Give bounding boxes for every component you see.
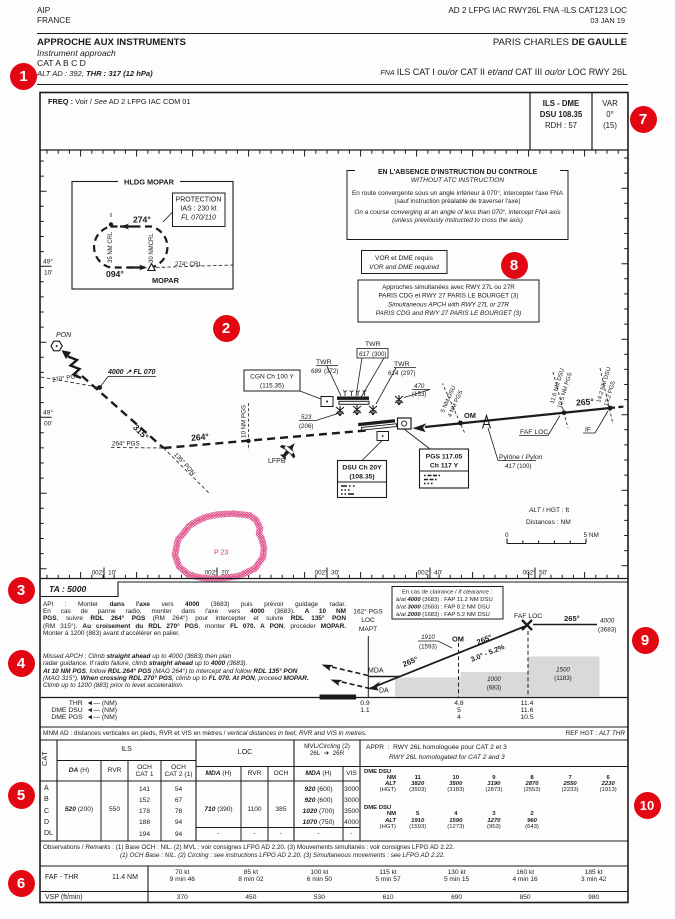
svg-text:270° PGS: 270° PGS	[52, 373, 80, 384]
svg-text:265°: 265°	[401, 655, 419, 669]
svg-text:PARIS CDG et RWY 27 PARIS LE B: PARIS CDG et RWY 27 PARIS LE BOURGET (3)	[378, 293, 518, 300]
svg-text:IAS : 230 kt: IAS : 230 kt	[180, 206, 216, 213]
svg-text:1500: 1500	[556, 667, 570, 674]
svg-text:(372): (372)	[324, 368, 338, 375]
svg-text:Distances : NM: Distances : NM	[526, 519, 571, 526]
svg-text:CGN Ch 100 Y: CGN Ch 100 Y	[250, 374, 294, 381]
svg-text:TWR: TWR	[394, 361, 410, 368]
svg-text:617: 617	[359, 351, 370, 358]
svg-text:FAF LOC: FAF LOC	[514, 613, 542, 620]
svg-text:TWR: TWR	[316, 359, 332, 366]
svg-text:Simultaneous APCH with RWY 27L: Simultaneous APCH with RWY 27L or 27R	[388, 302, 509, 309]
svg-text:(297): (297)	[401, 370, 415, 377]
svg-text:470: 470	[414, 383, 425, 390]
svg-text:(115.35): (115.35)	[260, 383, 284, 390]
svg-text:P 23: P 23	[214, 550, 228, 557]
svg-text:LOC: LOC	[361, 617, 375, 624]
svg-text:417 (100): 417 (100)	[505, 463, 532, 470]
svg-text:689: 689	[311, 368, 322, 375]
svg-text:135° PON: 135° PON	[172, 451, 196, 476]
svg-text:VOR et DME requis: VOR et DME requis	[375, 255, 434, 262]
svg-text:MOPAR: MOPAR	[152, 276, 180, 285]
svg-text:à/at 2000 (1683) : FAP 5.2 NM: à/at 2000 (1683) : FAP 5.2 NM DSU	[396, 612, 490, 618]
svg-text:315°: 315°	[131, 422, 151, 442]
svg-text:PON: PON	[56, 332, 72, 339]
svg-text:(300): (300)	[372, 351, 386, 358]
svg-text:1910: 1910	[421, 634, 435, 641]
svg-text:Ch 117 Y: Ch 117 Y	[430, 463, 459, 470]
svg-text:1000: 1000	[487, 676, 501, 683]
svg-text:5 NM: 5 NM	[584, 532, 599, 539]
svg-text:DSU Ch 20Y: DSU Ch 20Y	[342, 465, 382, 472]
svg-text:WITHOUT ATC INSTRUCTION: WITHOUT ATC INSTRUCTION	[411, 177, 504, 184]
svg-text:DA: DA	[379, 688, 389, 695]
svg-text:(108.35): (108.35)	[349, 474, 374, 481]
svg-text:265°: 265°	[475, 633, 493, 647]
svg-text:ALT / HGT : ft: ALT / HGT : ft	[528, 507, 569, 514]
svg-text:00': 00'	[44, 421, 52, 428]
svg-text:OM: OM	[452, 635, 464, 644]
svg-text:523: 523	[301, 414, 312, 421]
svg-text:En cas de clairance / If clear: En cas de clairance / If clearance :	[402, 590, 492, 596]
svg-text:265°: 265°	[564, 614, 580, 623]
svg-text:à/at 3000 (2683) : FAP 8.2 NM: à/at 3000 (2683) : FAP 8.2 NM DSU	[396, 605, 490, 611]
svg-text:En route convergente sous un a: En route convergente sous un angle infér…	[352, 189, 564, 197]
svg-text:VOR and DME required: VOR and DME required	[369, 264, 439, 271]
svg-text:PROTECTION: PROTECTION	[176, 197, 222, 204]
svg-text:PARIS CDG and RWY 27 PARIS LE: PARIS CDG and RWY 27 PARIS LE BOURGET (3…	[376, 310, 522, 317]
svg-text:TWR: TWR	[365, 341, 381, 348]
svg-text:10': 10'	[44, 270, 52, 277]
svg-text:EN L'ABSENCE D'INSTRUCTION DU: EN L'ABSENCE D'INSTRUCTION DU CONTROLE	[378, 169, 537, 176]
svg-text:IF: IF	[585, 427, 591, 434]
svg-text:49°: 49°	[43, 258, 53, 266]
svg-text:à/at 4000 (3683) : FAP 11.2 NM: à/at 4000 (3683) : FAP 11.2 NM DSU	[396, 597, 493, 603]
svg-text:(206): (206)	[299, 423, 313, 430]
svg-text:094°: 094°	[106, 269, 124, 279]
svg-text:4000: 4000	[600, 618, 615, 625]
svg-text:FAF LOC: FAF LOC	[520, 429, 548, 436]
svg-text:HLDG MOPAR: HLDG MOPAR	[124, 178, 175, 187]
svg-text:(683): (683)	[487, 685, 501, 692]
svg-text:264°: 264°	[191, 431, 210, 443]
svg-text:OM: OM	[464, 411, 476, 420]
svg-text:264° PGS: 264° PGS	[112, 441, 140, 448]
svg-text:Approches simultanées avec RWY: Approches simultanées avec RWY 27L ou 27…	[382, 284, 515, 291]
svg-text:PGS 117.05: PGS 117.05	[426, 454, 463, 461]
svg-text:(3683): (3683)	[598, 627, 616, 634]
svg-text:FL 070/110: FL 070/110	[181, 215, 216, 222]
svg-text:(unless previously instructed: (unless previously instructed to cross t…	[392, 217, 523, 224]
svg-text:(sauf instruction préalable de: (sauf instruction préalable de traverser…	[395, 198, 521, 205]
svg-text:4000 ↗ FL 070: 4000 ↗ FL 070	[107, 369, 155, 376]
svg-text:(1183): (1183)	[554, 675, 571, 682]
svg-text:3.0° - 5.2%: 3.0° - 5.2%	[469, 642, 506, 664]
svg-text:(1593): (1593)	[419, 644, 437, 651]
svg-text:265°: 265°	[576, 396, 595, 407]
svg-text:0: 0	[505, 532, 509, 539]
svg-text:274° CRL: 274° CRL	[175, 261, 202, 268]
svg-text:30 NMCRL: 30 NMCRL	[149, 233, 155, 263]
svg-text:Pylône / Pylon: Pylône / Pylon	[499, 454, 543, 461]
svg-text:162° PGS: 162° PGS	[353, 608, 383, 616]
svg-text:274°: 274°	[133, 215, 151, 225]
svg-text:49°: 49°	[43, 409, 53, 417]
svg-text:35 NM CRL: 35 NM CRL	[108, 231, 114, 263]
svg-text:LFPB: LFPB	[268, 458, 286, 465]
svg-text:614: 614	[388, 370, 399, 377]
svg-text:MDA: MDA	[368, 668, 384, 675]
svg-text:On a course converging at an a: On a course converging at an angle of le…	[354, 208, 561, 216]
svg-text:10 NM PGS: 10 NM PGS	[241, 405, 248, 438]
svg-text:MAPT: MAPT	[359, 626, 377, 633]
